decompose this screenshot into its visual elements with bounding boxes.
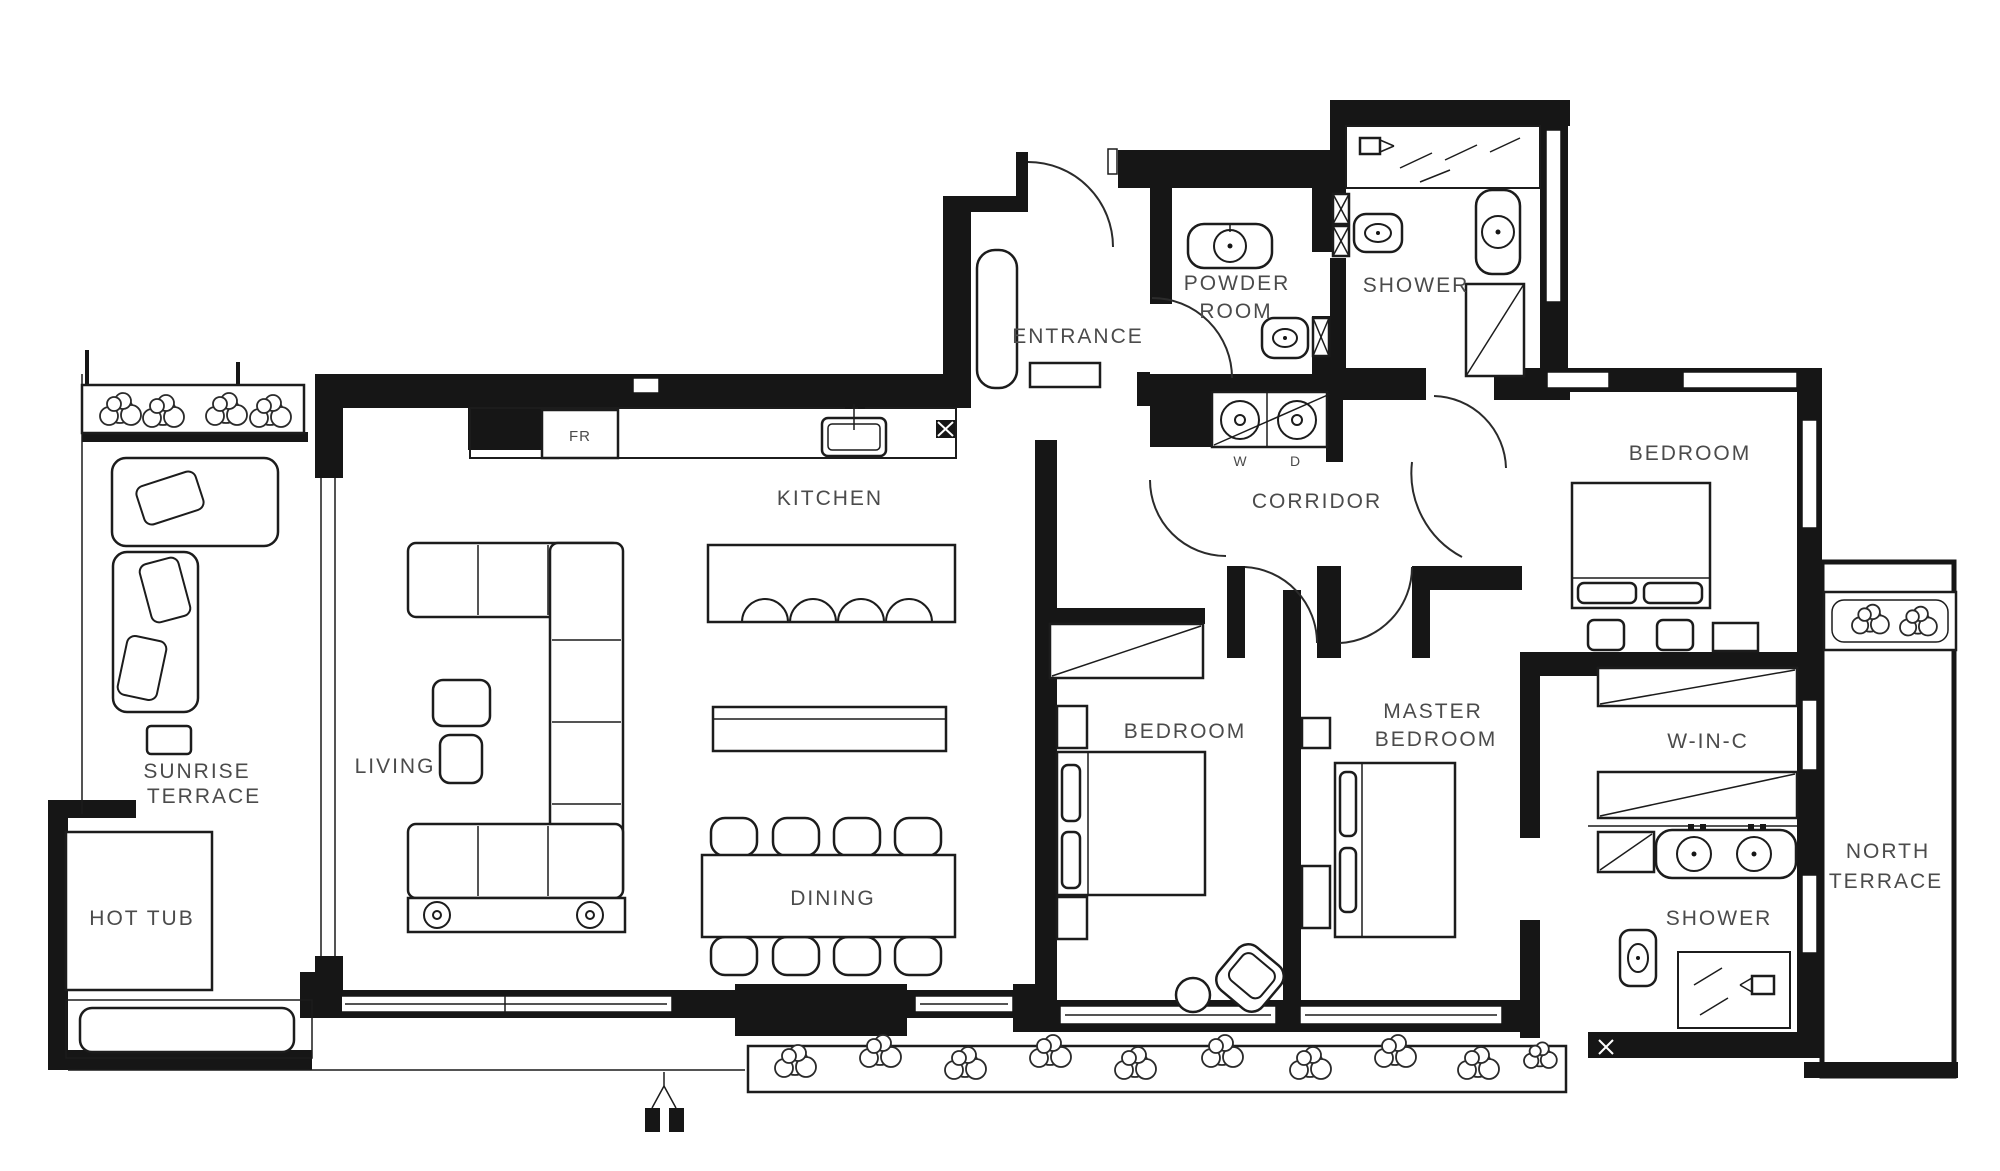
label-washer: W [1233, 453, 1247, 469]
powder-toilet [1262, 318, 1308, 358]
kitchen-island [708, 545, 955, 622]
label-sunrise-terrace-line1: SUNRISE [143, 760, 250, 783]
shower-stall [1678, 952, 1790, 1028]
entrance [977, 149, 1117, 388]
label-bedroom-mid: BEDROOM [1124, 720, 1247, 743]
nightstand [1302, 718, 1330, 748]
bench-planter [80, 1008, 294, 1052]
nightstand [1657, 620, 1693, 650]
dining-chair [773, 937, 819, 975]
cooktop-symbol [936, 420, 955, 438]
floor-plan-drawing: SUNRISE TERRACE HOT TUB LIVING KITCHEN D… [0, 0, 2000, 1171]
label-powder-room-line2: ROOM [1199, 300, 1272, 323]
lounge-daybed-upper [112, 458, 278, 546]
drain-symbol [1597, 1038, 1615, 1056]
label-hot-tub: HOT TUB [89, 907, 194, 930]
bush-icon [860, 1035, 901, 1067]
wardrobe [1466, 284, 1524, 376]
north-terrace [1822, 562, 1956, 1076]
dining-chair [895, 937, 941, 975]
label-north-terrace-line2: TERRACE [1829, 870, 1943, 893]
powder-sink [1188, 224, 1272, 268]
shower-head-icon [1360, 138, 1394, 154]
shower-door-arc [1411, 462, 1462, 557]
label-sunrise-terrace-line2: TERRACE [147, 785, 261, 808]
shelf [1598, 832, 1654, 872]
dresser [1302, 866, 1330, 928]
ottoman-small [440, 735, 482, 783]
dining-chair [834, 937, 880, 975]
shower-stall [1346, 126, 1540, 188]
kitchen-sink [822, 402, 886, 456]
bedroom-middle [1050, 624, 1289, 1017]
lounge-daybed-lower [113, 552, 198, 712]
bedroom-tr-door-arc [1434, 396, 1506, 468]
toilet [1620, 930, 1656, 986]
label-winc: W-IN-C [1667, 730, 1749, 753]
label-corridor: CORRIDOR [1252, 490, 1382, 513]
bush-icon [1375, 1035, 1416, 1067]
label-shower-top: SHOWER [1363, 274, 1470, 297]
washer-dryer [1212, 392, 1330, 447]
label-powder-room-line1: POWDER [1184, 272, 1291, 295]
bedroom-top-right [1572, 483, 1758, 651]
light-fixture-symbol [645, 1072, 684, 1132]
hall-door-arc [1150, 480, 1226, 556]
label-north-terrace-line1: NORTH [1846, 840, 1930, 863]
label-master-line1: MASTER [1383, 700, 1483, 723]
shower-head-icon [1740, 976, 1774, 994]
master-door-arc [1340, 567, 1412, 643]
dining-chair [895, 818, 941, 856]
label-entrance: ENTRANCE [1012, 325, 1144, 348]
ottoman-large [433, 680, 490, 726]
nightstand [1588, 620, 1624, 650]
hot-tub-area [66, 832, 312, 1058]
bed [1335, 763, 1455, 937]
sideboard [713, 707, 946, 751]
label-shower-bottom: SHOWER [1666, 907, 1773, 930]
doormat [1030, 363, 1100, 387]
nightstand [1057, 706, 1087, 748]
bed [1057, 752, 1205, 895]
double-vanity [1656, 824, 1796, 878]
label-fridge: FR [569, 428, 591, 445]
bed [1572, 483, 1710, 608]
terrace-side-table [147, 726, 191, 754]
sink [1476, 190, 1520, 274]
shower-room-top [1346, 126, 1540, 376]
shower-room-bottom [1597, 824, 1796, 1056]
dining-chair [773, 818, 819, 856]
bench [1713, 623, 1758, 651]
dining-chair [834, 818, 880, 856]
label-dining: DINING [790, 887, 876, 910]
bush-icon [1030, 1035, 1071, 1067]
label-master-line2: BEDROOM [1375, 728, 1498, 751]
side-table [1176, 978, 1210, 1012]
living-room [408, 543, 625, 932]
bedroom-door-arc [1245, 567, 1317, 643]
dining-chair [711, 937, 757, 975]
entry-bench [977, 250, 1017, 388]
door-jamb [1108, 149, 1117, 174]
label-kitchen: KITCHEN [777, 487, 883, 510]
entrance-door-arc [1028, 162, 1113, 247]
tv-console [408, 898, 625, 932]
bush-icon [1202, 1035, 1243, 1067]
label-bedroom-top: BEDROOM [1629, 442, 1752, 465]
wardrobe [1050, 624, 1203, 678]
label-living: LIVING [355, 755, 436, 778]
dining-chair [711, 818, 757, 856]
nightstand [1057, 897, 1087, 939]
toilet [1354, 214, 1402, 252]
label-dryer: D [1290, 453, 1300, 469]
floor-plan: SUNRISE TERRACE HOT TUB LIVING KITCHEN D… [0, 0, 2000, 1171]
